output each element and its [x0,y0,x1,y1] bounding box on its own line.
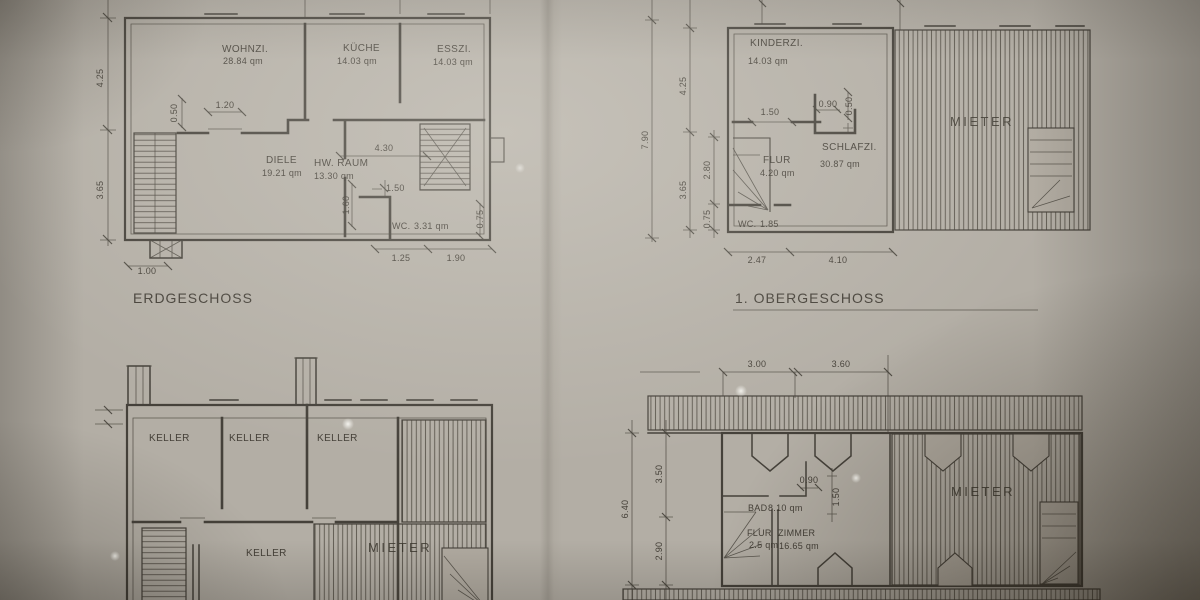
plan-title-erdgeschoss: ERDGESCHOSS [133,290,253,306]
room-area: 14.03 qm [433,57,473,67]
room-label: KELLER [229,433,270,444]
kg-dim-ticks [104,406,112,428]
dim-label: 1.50 [761,107,780,117]
dg-bottom-band [623,589,1100,600]
room-area: 30.87 qm [820,159,860,169]
dim-label: 1.90 [447,253,466,263]
room-area: 28.84 qm [223,56,263,66]
kg-dim-stubs [95,410,123,424]
dg-dormer-2 [815,434,851,471]
dim-label: 0.50 [844,97,854,116]
eg-chimney-detail [150,240,182,258]
dg-interior-walls [722,462,806,586]
floor-plan-sheet: WOHNZI. 28.84 qm KÜCHE 14.03 qm ESSZI. 1… [0,0,1200,600]
plan-title-obergeschoss: 1. OBERGESCHOSS [735,290,885,306]
room-label: ZIMMER [778,528,815,538]
dim-label: 0.75 [702,210,712,229]
dg-dormer-bottom-1 [818,553,852,586]
room-label: ESSZI. [437,44,471,55]
room-area: 19.21 qm [262,168,302,178]
room-label: WC. [738,219,756,229]
kg-chimney-2 [296,358,316,405]
kg-chimney-1 [128,366,150,405]
room-area: 2.5 qm [749,540,778,550]
kg-chimney-detail [126,358,318,405]
dg-roof-band [648,396,1082,430]
dim-label: 6.40 [620,500,630,519]
room-label: KELLER [246,548,287,559]
dim-label: 0.50 [169,104,179,123]
dim-label: 0.90 [819,99,838,109]
room-label: KÜCHE [343,42,380,54]
kg-stair [142,528,186,600]
dim-label: 4.30 [375,143,394,153]
kg-hatch-stair-bg [442,548,488,600]
room-area: 14.03 qm [748,56,788,66]
mieter-label: MIETER [368,540,432,555]
dim-label: 0.75 [475,210,485,229]
room-label: KELLER [317,433,358,444]
plan-dachgeschoss: 3.00 3.60 BAD 8.10 qm FLUR 2.5 qm ZIMMER… [620,355,1100,600]
room-label: WC. [392,221,410,231]
room-label: DIELE [266,155,297,166]
room-label: HW. RAUM [314,158,368,169]
dim-label: 4.10 [829,255,848,265]
dim-label: 1.50 [386,183,405,193]
dim-label: 4.25 [678,77,688,96]
dim-label: 0.90 [800,475,819,485]
mieter-label: MIETER [950,114,1014,129]
kg-mieter-hatch-upper [402,420,486,522]
mieter-label: MIETER [951,484,1015,499]
room-area: 13.30 qm [314,171,354,181]
dim-label: 3.65 [678,181,688,200]
og-window-marks [755,24,1084,26]
dim-label: 4.25 [95,69,105,88]
kg-stair-wall [193,545,199,600]
room-area: 4.20 qm [760,168,795,178]
room-area: 16.65 qm [779,541,819,551]
dim-label: 3.50 [654,465,664,484]
dim-label: 7.90 [640,131,650,150]
dim-label: 1.25 [392,253,411,263]
dim-label: 1.60 [341,196,351,215]
room-area: 8.10 qm [768,503,803,513]
dim-label: 1.20 [216,100,235,110]
eg-right-bay [490,138,504,162]
room-label: FLUR [763,155,791,166]
dim-label: 3.65 [95,181,105,200]
dim-label: 1.50 [831,488,841,507]
room-area: 3.31 qm [414,221,449,231]
room-label: FLUR [747,528,772,538]
og-hatch-stair-bg [1028,128,1074,212]
dg-dim-lines [625,420,837,600]
dim-label: 3.00 [748,359,767,369]
room-label: BAD [748,503,768,513]
dim-label: 1.00 [138,266,157,276]
room-area: 14.03 qm [337,56,377,66]
dim-label: 2.90 [654,542,664,561]
plan-erdgeschoss: WOHNZI. 28.84 qm KÜCHE 14.03 qm ESSZI. 1… [95,0,504,306]
room-area: 1.85 [760,219,779,229]
dim-label: 2.47 [748,255,767,265]
room-label: KINDERZI. [750,38,803,49]
dim-label: 2.80 [702,161,712,180]
plan-keller: KELLER KELLER KELLER KELLER MIETER [95,358,492,600]
plan-obergeschoss: KINDERZI. 14.03 qm SCHLAFZI. 30.87 qm FL… [640,0,1090,310]
dim-label: 3.60 [832,359,851,369]
room-label: SCHLAFZI. [822,142,877,153]
room-label: KELLER [149,433,190,444]
dg-dormer-1 [752,434,788,471]
room-label: WOHNZI. [222,44,268,55]
